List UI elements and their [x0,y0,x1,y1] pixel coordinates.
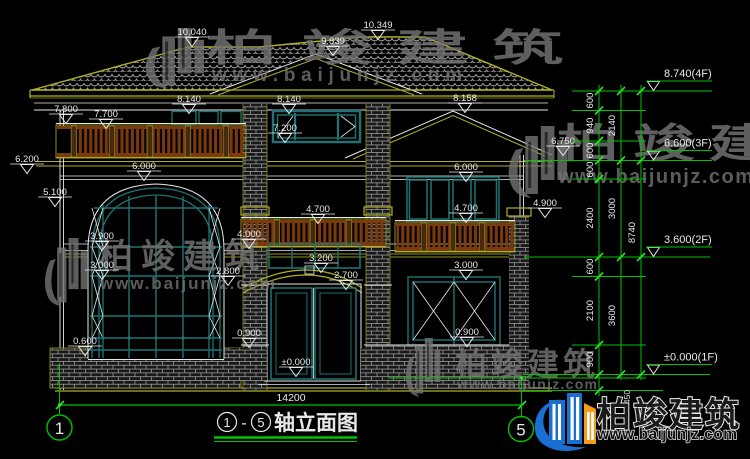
svg-text:3000: 3000 [607,198,618,219]
svg-text:3.900: 3.900 [90,231,114,242]
svg-text:600: 600 [585,259,596,275]
svg-text:3.000: 3.000 [90,260,114,271]
svg-text:940: 940 [585,118,596,134]
svg-text:600: 600 [585,93,596,109]
svg-text:8.158: 8.158 [453,93,477,104]
svg-text:7.800: 7.800 [54,104,78,115]
svg-text:±0.000: ±0.000 [282,357,311,368]
svg-text:2100: 2100 [585,300,596,321]
svg-text:7.700: 7.700 [94,109,118,120]
svg-text:9.839: 9.839 [321,36,345,47]
svg-text:900: 900 [585,352,596,368]
svg-text:1: 1 [55,419,64,438]
svg-text:3.600(2F): 3.600(2F) [664,234,712,246]
svg-text:14200: 14200 [276,392,305,404]
svg-text:柏竣建筑: 柏竣建筑 [99,237,267,276]
svg-text:-: - [241,415,246,432]
svg-text:600: 600 [585,162,596,178]
svg-text:3600: 3600 [607,305,618,326]
svg-text:600: 600 [585,143,596,159]
svg-text:0.600: 0.600 [73,336,97,347]
svg-text:6.600(3F): 6.600(3F) [664,138,712,150]
svg-text:4.700: 4.700 [306,204,330,215]
svg-text:4.900: 4.900 [533,198,557,209]
svg-text:柏竣建筑: 柏竣建筑 [206,27,587,70]
svg-text:5.100: 5.100 [43,187,67,198]
svg-text:3.200: 3.200 [309,253,333,264]
svg-text:5: 5 [257,415,264,430]
svg-text:2.800: 2.800 [216,266,240,277]
svg-text:±0.000(1F): ±0.000(1F) [664,352,718,364]
svg-text:8.140: 8.140 [277,94,301,105]
svg-text:6.000: 6.000 [132,161,156,172]
svg-text:0.900: 0.900 [237,328,261,339]
svg-text:轴立面图: 轴立面图 [274,411,358,435]
svg-text:2140: 2140 [607,115,618,136]
svg-text:2400: 2400 [585,207,596,228]
svg-text:10.040: 10.040 [177,27,206,38]
svg-text:4.700: 4.700 [454,203,478,214]
svg-text:0.900: 0.900 [455,327,479,338]
svg-text:2.700: 2.700 [334,270,358,281]
svg-text:3.000: 3.000 [454,260,478,271]
svg-text:8740: 8740 [627,222,638,243]
svg-text:4.000: 4.000 [237,229,261,240]
svg-text:1: 1 [223,415,230,430]
svg-text:7.200: 7.200 [273,123,297,134]
svg-text:6.000: 6.000 [454,162,478,173]
svg-text:5: 5 [516,421,525,440]
svg-text:8.140: 8.140 [177,94,201,105]
svg-text:8.740(4F): 8.740(4F) [664,68,712,80]
svg-text:6.200: 6.200 [15,154,39,165]
svg-text:www.baijunjz.com: www.baijunjz.com [596,426,737,443]
svg-text:10.349: 10.349 [363,20,392,31]
svg-text:6.750: 6.750 [551,136,575,147]
